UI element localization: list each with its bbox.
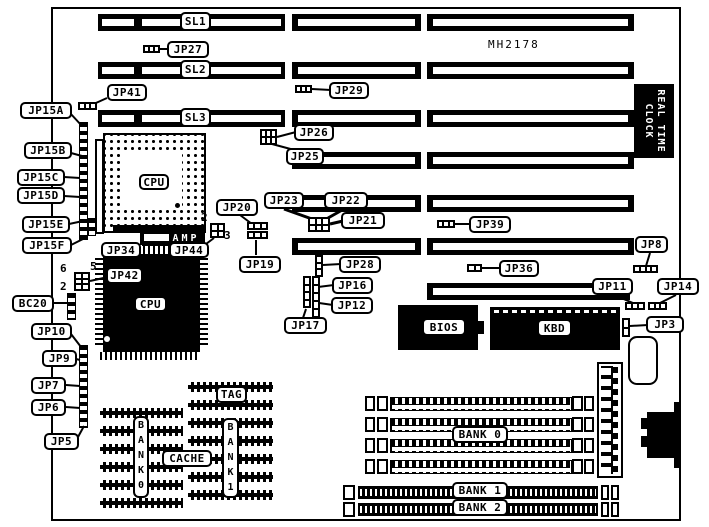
jumper-pin (639, 304, 643, 308)
jp20-jumper-row1 (247, 222, 268, 230)
jumper-pin (219, 225, 224, 230)
jumper-pin (155, 47, 158, 51)
pin-number-3-cpu: 3 (224, 229, 231, 242)
jp7-label: JP7 (31, 377, 66, 394)
jumper-pin (317, 226, 322, 231)
jumper-pin (314, 286, 318, 292)
jp15e-label: JP15E (22, 216, 70, 233)
jumper-pin (650, 304, 654, 308)
jumper-pin (83, 285, 88, 289)
slot-row6-seg2 (427, 238, 634, 255)
cpu-socket-pin1-dot (175, 203, 180, 208)
keyboard-connector-pin-top (641, 418, 648, 429)
cache-bank1-vertical-label: B A N K 1 (222, 418, 239, 498)
simm-latch (584, 438, 594, 453)
jumper-pin (76, 274, 81, 278)
battery-outline (628, 336, 658, 385)
cache-bank0-chips-row (100, 498, 183, 508)
jp28-jumper (315, 255, 323, 277)
simm-latch (365, 417, 375, 432)
jp36-jumper (467, 264, 482, 272)
simm-latch (572, 459, 583, 474)
slot-sl1-seg2 (292, 14, 421, 31)
simm-latch (572, 417, 583, 432)
simm-latch (611, 485, 619, 500)
jumper-pin (255, 224, 259, 228)
jp42-jumper (74, 272, 90, 291)
slot-row6-seg1 (292, 238, 421, 255)
simm-latch (377, 438, 388, 453)
jp23-label: JP23 (264, 192, 304, 209)
rtc-label-line1: REAL TIME (654, 89, 666, 152)
cpu-qfp-pins-right (200, 258, 208, 346)
keyboard-connector (647, 412, 676, 458)
jp36-label: JP36 (499, 260, 539, 277)
tag-label: TAG (216, 386, 247, 403)
bios-socket-notch (478, 321, 484, 334)
jumper-pin (661, 304, 665, 308)
bc20-pin-strip (67, 293, 76, 320)
simm-latch (601, 502, 609, 517)
slot-sl3-seg3 (427, 110, 634, 127)
pin-number-6-jp42: 6 (60, 262, 67, 275)
jumper-pin (262, 131, 265, 136)
power-connector-slots (613, 367, 618, 473)
jp10-label: JP10 (31, 323, 72, 340)
jp5-jp10-pin-strip (79, 345, 88, 428)
jp15f-label: JP15F (22, 237, 72, 254)
bios-label: BIOS (422, 318, 466, 336)
jp14-label: JP14 (657, 278, 699, 295)
kbd-socket-dashes (494, 310, 616, 313)
simm-latch (377, 396, 388, 411)
jumper-pin (255, 233, 259, 237)
simm-socket-bank0 (390, 397, 572, 411)
jp3-jumper (622, 318, 630, 337)
jumper-pin (652, 267, 656, 271)
simm-latch (377, 459, 388, 474)
simm-latch (343, 485, 355, 500)
jp17-jumper-b (312, 276, 320, 318)
jumper-pin (219, 232, 224, 237)
simm-latch (377, 417, 388, 432)
jumper-pin (297, 87, 300, 91)
jumper-pin (476, 266, 481, 270)
simm-latch (365, 396, 375, 411)
jp15d-label: JP15D (17, 187, 65, 204)
jp27-label: JP27 (167, 41, 209, 58)
jumper-pin (305, 293, 309, 299)
jumper-pin (305, 278, 309, 284)
simm-latch (611, 502, 619, 517)
jumper-pin (314, 294, 318, 300)
jp41-jumper (78, 102, 97, 110)
jumper-pin (314, 302, 318, 308)
slot-row5-seg2 (427, 195, 634, 212)
jumper-pin (317, 257, 321, 262)
jumper-pin (627, 304, 631, 308)
jp15c-label: JP15C (17, 169, 65, 186)
simm-latch (365, 438, 375, 453)
sl2-label: SL2 (180, 60, 211, 79)
jp27-jumper (143, 45, 160, 53)
jp19-label: JP19 (239, 256, 281, 273)
cpu-qfp-pin1-dot (104, 336, 110, 342)
power-connector (597, 362, 623, 478)
slot-sl2-seg3 (427, 62, 634, 79)
jp21-label: JP21 (341, 212, 385, 229)
slot-row4-seg2 (427, 152, 634, 169)
jumper-pin (80, 104, 84, 108)
jp11-jumper (625, 302, 645, 310)
jumper-pin (272, 131, 275, 136)
bank0-label: BANK 0 (452, 426, 508, 443)
jumper-pin (262, 138, 265, 143)
rtc-label-line2: CLOCK (642, 103, 654, 138)
jumper-pin (249, 224, 253, 228)
jp22-label: JP22 (324, 192, 368, 209)
jp20-label: JP20 (216, 199, 258, 216)
board-id-text: MH2178 (488, 38, 540, 51)
jumper-pin (323, 226, 328, 231)
jumper-pin (469, 266, 474, 270)
real-time-clock-label: REAL TIME CLOCK (634, 84, 674, 158)
jumper-pin (262, 224, 266, 228)
simm-latch (572, 438, 583, 453)
jumper-pin (310, 219, 315, 224)
jp28-label: JP28 (339, 256, 381, 273)
pin-number-2-cpu: 2 (201, 211, 208, 224)
jp42-label: JP42 (106, 267, 143, 284)
cache-label: CACHE (162, 450, 212, 467)
jp8-jumper (633, 265, 658, 273)
jp3-label: JP3 (646, 316, 684, 333)
jumper-pin (305, 286, 309, 292)
jumper-pin (76, 280, 81, 284)
amp-connector-bar (113, 225, 205, 233)
jp11-label: JP11 (592, 278, 633, 295)
jp26-label: JP26 (294, 124, 334, 141)
jumper-pin (635, 267, 639, 271)
cpu-qfp-label: CPU (134, 296, 167, 312)
motherboard-diagram: MH2178 REAL TIME CLOCK AMP SL1SL2SL3JP27… (0, 0, 709, 527)
jumper-pin (444, 222, 447, 226)
cpu-qfp-pins-bottom (100, 352, 200, 360)
simm-latch (572, 396, 583, 411)
jumper-pin (323, 219, 328, 224)
jp15-pin-strip (79, 122, 88, 240)
jp29-label: JP29 (329, 82, 369, 99)
jp17-label: JP17 (284, 317, 327, 334)
keyboard-connector-bracket (674, 402, 681, 468)
jumper-pin (267, 138, 270, 143)
jumper-pin (267, 131, 270, 136)
jumper-pin (91, 104, 95, 108)
jp29-jumper (295, 85, 312, 93)
jp41-label: JP41 (107, 84, 147, 101)
jp5-label: JP5 (44, 433, 79, 450)
simm-latch (601, 485, 609, 500)
simm-latch (584, 459, 594, 474)
pin-number-2-jp42: 2 (60, 280, 67, 293)
jumper-pin (83, 280, 88, 284)
jp8-label: JP8 (635, 236, 668, 253)
jumper-pin (150, 47, 153, 51)
jp44-label: JP44 (169, 242, 209, 258)
simm-socket-bank0 (390, 460, 572, 474)
jumper-pin (317, 270, 321, 275)
bc20-label: BC20 (12, 295, 54, 312)
jp15ef-pin-strip (88, 218, 96, 236)
jp20-jumper-row2 (247, 231, 268, 239)
jp14-jumper (648, 302, 667, 310)
jp21-jumper (308, 217, 330, 232)
bank2-label: BANK 2 (452, 499, 508, 516)
jumper-pin (647, 267, 651, 271)
jumper-pin (317, 264, 321, 269)
jp6-label: JP6 (31, 399, 66, 416)
jumper-pin (302, 87, 305, 91)
jumper-pin (641, 267, 645, 271)
jp25-label: JP25 (286, 148, 324, 165)
jumper-pin (314, 278, 318, 284)
jumper-pin (249, 233, 253, 237)
jumper-pin (633, 304, 637, 308)
jumper-pin (76, 285, 81, 289)
slot-sl2-seg2 (292, 62, 421, 79)
jumper-pin (439, 222, 442, 226)
jp17-jumper-a (303, 276, 311, 308)
jumper-pin (307, 87, 310, 91)
cpu-socket-label: CPU (139, 174, 169, 190)
jumper-pin (624, 320, 628, 327)
jumper-pin (272, 138, 275, 143)
slot-sl1-seg3 (427, 14, 634, 31)
jp34-label: JP34 (101, 242, 141, 258)
simm-latch (584, 396, 594, 411)
jp39-jumper (437, 220, 455, 228)
jp15a-label: JP15A (20, 102, 72, 119)
jumper-pin (86, 104, 90, 108)
jumper-pin (212, 232, 217, 237)
jp12-label: JP12 (331, 297, 373, 314)
jp16-label: JP16 (332, 277, 373, 294)
jumper-pin (450, 222, 453, 226)
sl3-label: SL3 (180, 108, 211, 127)
simm-latch (365, 459, 375, 474)
jumper-pin (262, 233, 266, 237)
simm-latch (584, 417, 594, 432)
cache-bank0-vertical-label: B A N K 0 (133, 416, 149, 498)
jumper-pin (305, 301, 309, 307)
jumper-pin (656, 304, 660, 308)
jp39-label: JP39 (469, 216, 511, 233)
jumper-pin (83, 274, 88, 278)
jumper-pin (212, 225, 217, 230)
pin-number-5-jp42: 5 (90, 260, 97, 273)
jumper-pin (314, 310, 318, 316)
keyboard-connector-pin-bottom (641, 436, 648, 447)
cpu-socket-lever (95, 139, 104, 234)
simm-latch (343, 502, 355, 517)
jumper-pin (145, 47, 148, 51)
jp26-jumper (260, 129, 277, 145)
jumper-pin (310, 226, 315, 231)
jumper-pin (317, 219, 322, 224)
power-connector-pins (601, 366, 613, 474)
bank1-label: BANK 1 (452, 482, 508, 499)
sl1-label: SL1 (180, 12, 211, 31)
jp44-jumper (210, 223, 225, 238)
jumper-pin (624, 329, 628, 336)
jp15b-label: JP15B (24, 142, 72, 159)
jp9-label: JP9 (42, 350, 77, 367)
kbd-label: KBD (537, 319, 572, 337)
